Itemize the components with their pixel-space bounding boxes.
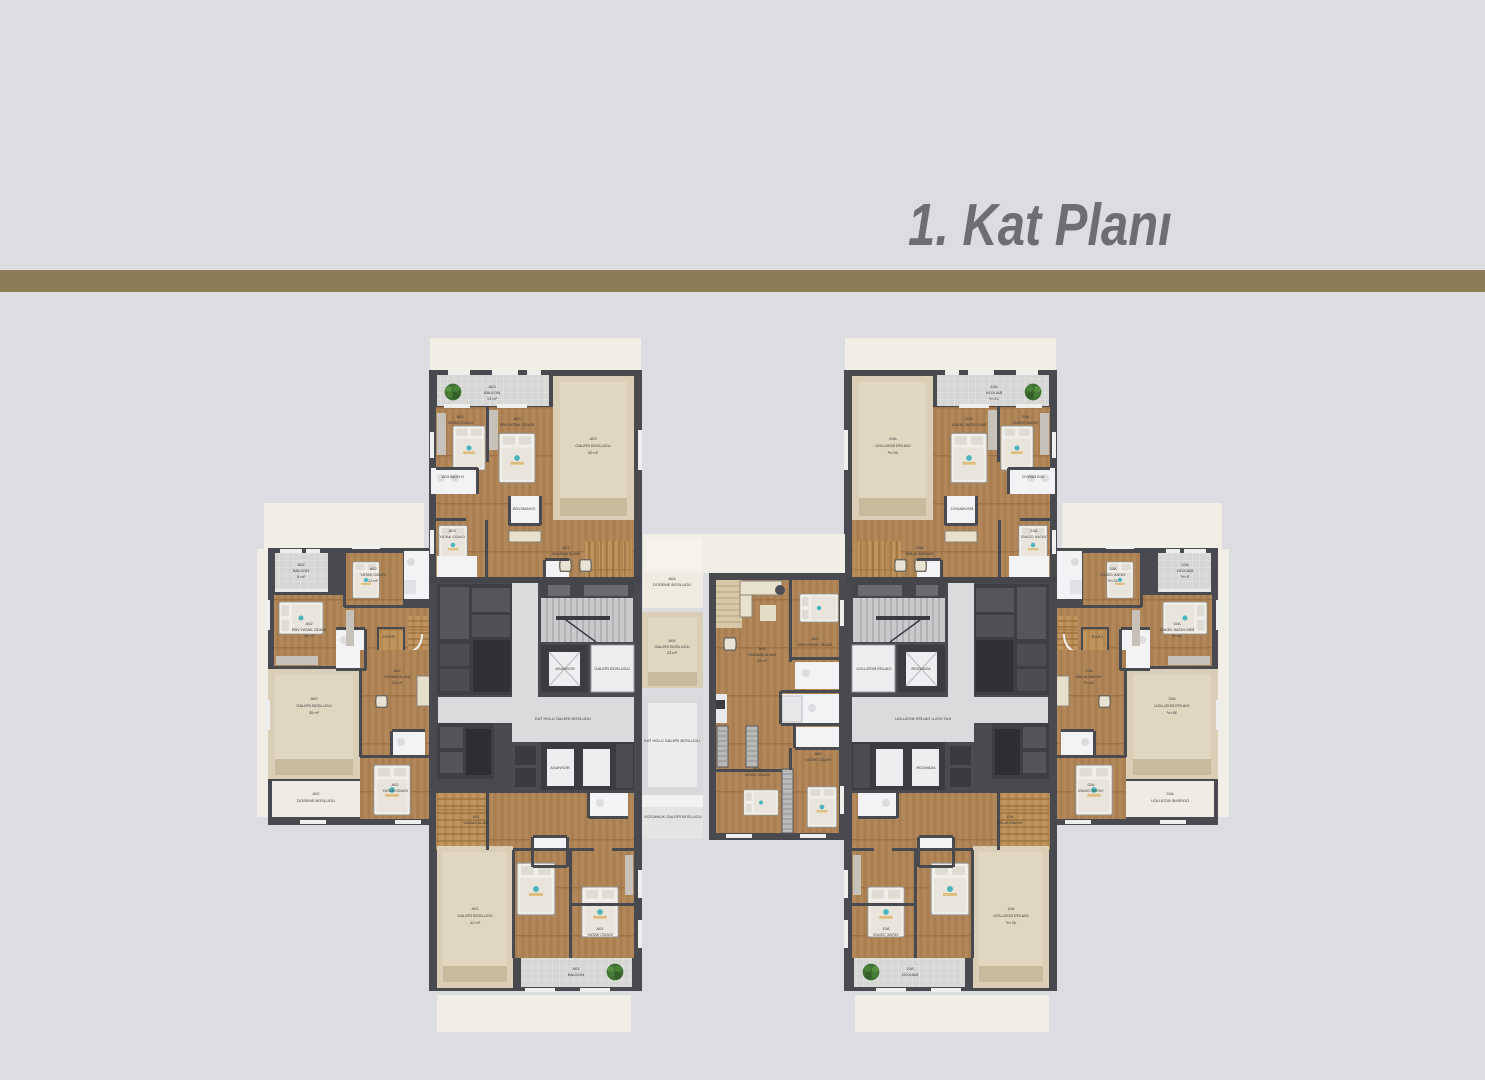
svg-text:A03: A03 — [448, 528, 456, 533]
svg-text:A04: A04 — [668, 638, 676, 643]
svg-text:YASAM ALANI: YASAM ALANI — [463, 820, 489, 825]
svg-text:35 m²: 35 m² — [757, 658, 768, 663]
svg-text:GALERI BOSLUGU: GALERI BOSLUGU — [594, 666, 629, 671]
svg-text:A01: A01 — [596, 926, 604, 931]
svg-text:A03 BANYO: A03 BANYO — [442, 474, 464, 479]
svg-text:A01: A01 — [471, 906, 479, 911]
svg-text:42 m²: 42 m² — [470, 920, 481, 925]
svg-text:ASANSOR: ASANSOR — [555, 666, 575, 671]
svg-text:A02: A02 — [305, 621, 313, 626]
svg-text:YATAK ODASI: YATAK ODASI — [439, 534, 465, 539]
svg-text:YASAMA ALANI: YASAMA ALANI — [552, 551, 581, 556]
svg-text:A03: A03 — [513, 416, 521, 421]
svg-text:13 m²: 13 m² — [487, 396, 498, 401]
svg-text:GALERI BOSLUGU: GALERI BOSLUGU — [575, 443, 610, 448]
svg-text:BALKON: BALKON — [484, 390, 500, 395]
svg-text:YATAK ODASI: YATAK ODASI — [447, 420, 473, 425]
svg-text:YATAK ODASI: YATAK ODASI — [360, 572, 386, 577]
svg-text:EBV.BANYO: EBV.BANYO — [513, 506, 536, 511]
svg-text:YASAM ALANI: YASAM ALANI — [384, 674, 410, 679]
svg-text:22 m²: 22 m² — [392, 680, 403, 685]
svg-text:A03: A03 — [562, 545, 570, 550]
svg-text:A03: A03 — [488, 384, 496, 389]
svg-text:A02: A02 — [297, 562, 305, 567]
svg-text:GALERI BOSLUGU: GALERI BOSLUGU — [654, 644, 689, 649]
svg-text:KAT HOLU GALERI BOSLUGU: KAT HOLU GALERI BOSLUGU — [535, 716, 591, 721]
svg-text:A03: A03 — [589, 436, 597, 441]
svg-text:35 m²: 35 m² — [309, 710, 320, 715]
svg-text:A02: A02 — [369, 566, 377, 571]
svg-text:A02: A02 — [310, 696, 318, 701]
svg-text:A01: A01 — [472, 814, 480, 819]
svg-text:KIZGANLIK GALERI BOSLUGU: KIZGANLIK GALERI BOSLUGU — [644, 814, 701, 819]
svg-text:KAT HOLU GALERI BOSLUGU: KAT HOLU GALERI BOSLUGU — [644, 738, 700, 743]
svg-text:A04: A04 — [814, 751, 822, 756]
svg-text:GALERI BOSLUGU: GALERI BOSLUGU — [457, 913, 492, 918]
svg-text:YATAK ODASI: YATAK ODASI — [382, 788, 408, 793]
svg-text:A03: A03 — [456, 414, 464, 419]
svg-text:A01: A01 — [572, 966, 580, 971]
svg-text:ASANSOR: ASANSOR — [550, 765, 570, 770]
svg-text:A02: A02 — [393, 668, 401, 673]
svg-text:A02: A02 — [391, 782, 399, 787]
svg-text:EBV.YATAK ODASI: EBV.YATAK ODASI — [292, 627, 327, 632]
svg-text:BALKON: BALKON — [293, 568, 309, 573]
svg-text:A02: A02 — [312, 791, 320, 796]
svg-text:A04: A04 — [753, 766, 761, 771]
svg-text:BALKON: BALKON — [568, 972, 584, 977]
svg-text:EBV.YATAK ODASI: EBV.YATAK ODASI — [798, 642, 833, 647]
svg-text:A04: A04 — [668, 576, 676, 581]
svg-text:YATAK ODASI: YATAK ODASI — [805, 757, 831, 762]
svg-text:YATAK ODASI: YATAK ODASI — [587, 932, 613, 937]
svg-text:5 m²: 5 m² — [297, 574, 306, 579]
svg-text:YATAK ODASI: YATAK ODASI — [744, 772, 770, 777]
svg-text:A04: A04 — [811, 636, 819, 641]
svg-text:DOSEME BOSLUGU: DOSEME BOSLUGU — [297, 798, 335, 803]
svg-text:DOSEME BOSLUGU: DOSEME BOSLUGU — [653, 582, 691, 587]
svg-text:KILER: KILER — [383, 634, 395, 639]
svg-text:16 m²: 16 m² — [304, 633, 315, 638]
svg-text:40 m²: 40 m² — [588, 450, 599, 455]
svg-text:12 m²: 12 m² — [368, 578, 379, 583]
svg-text:GALERI BOSLUGU: GALERI BOSLUGU — [296, 703, 331, 708]
svg-text:A04: A04 — [758, 646, 766, 651]
svg-text:YASAMA ALANI: YASAMA ALANI — [748, 652, 777, 657]
svg-text:EBV.YATAK ODASI: EBV.YATAK ODASI — [500, 422, 535, 427]
svg-text:23 m²: 23 m² — [667, 650, 678, 655]
